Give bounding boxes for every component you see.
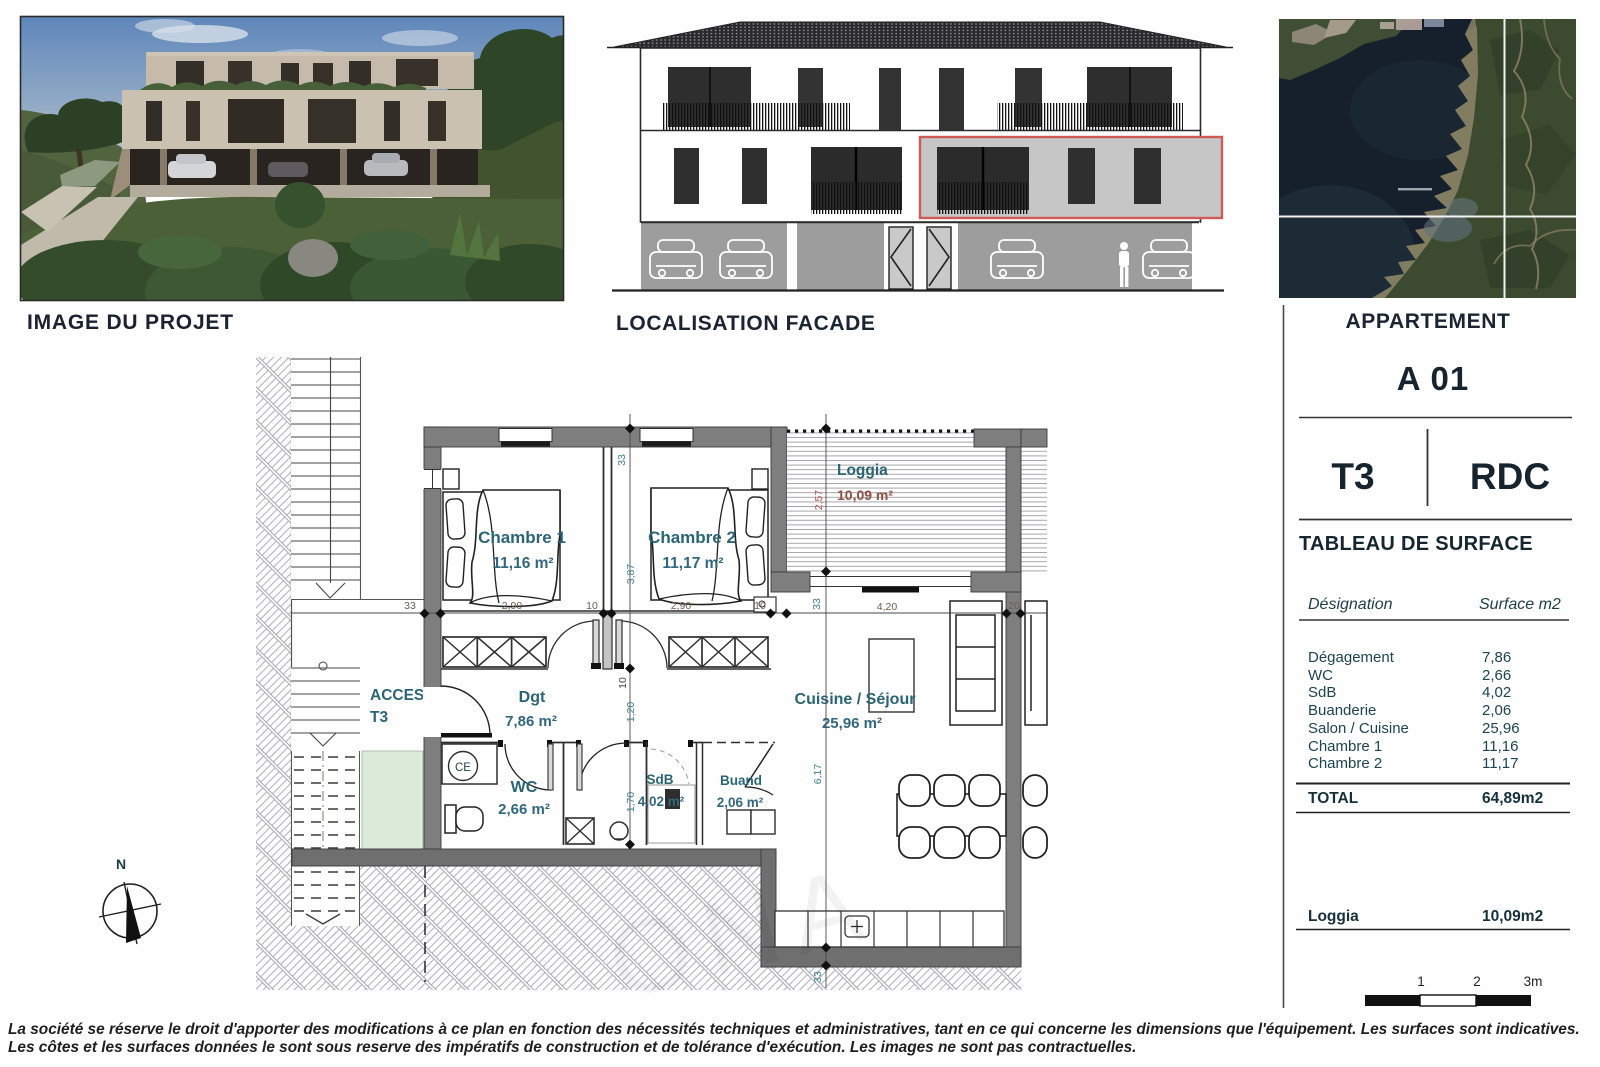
svg-text:CE: CE bbox=[455, 762, 471, 774]
svg-text:Cuisine / Séjour: Cuisine / Séjour bbox=[795, 691, 916, 708]
svg-text:7,86 m²: 7,86 m² bbox=[505, 713, 557, 730]
svg-text:11,17: 11,17 bbox=[1482, 755, 1518, 772]
svg-text:3m: 3m bbox=[1524, 974, 1543, 989]
svg-text:Dgt: Dgt bbox=[519, 689, 546, 706]
svg-text:Chambre 1: Chambre 1 bbox=[1308, 738, 1382, 755]
svg-text:TOTAL: TOTAL bbox=[1308, 790, 1358, 807]
svg-text:RDC: RDC bbox=[1470, 456, 1550, 497]
svg-text:WC: WC bbox=[511, 779, 538, 796]
svg-text:4,02: 4,02 bbox=[1482, 684, 1511, 701]
svg-text:1,20: 1,20 bbox=[625, 702, 637, 723]
svg-text:Désignation: Désignation bbox=[1308, 596, 1393, 613]
svg-text:33: 33 bbox=[404, 600, 416, 612]
svg-text:Loggia: Loggia bbox=[837, 462, 888, 479]
svg-text:IMAGE DU PROJET: IMAGE DU PROJET bbox=[27, 311, 234, 334]
svg-text:10,09m2: 10,09m2 bbox=[1482, 908, 1543, 925]
svg-text:4,20: 4,20 bbox=[877, 601, 898, 613]
svg-text:4,02 m²: 4,02 m² bbox=[638, 794, 685, 809]
svg-text:WC: WC bbox=[1308, 667, 1333, 684]
svg-text:2,66 m²: 2,66 m² bbox=[498, 801, 550, 818]
svg-text:6,17: 6,17 bbox=[812, 764, 824, 785]
svg-text:33: 33 bbox=[812, 971, 824, 983]
svg-text:25,96 m²: 25,96 m² bbox=[822, 715, 882, 732]
svg-text:Salon / Cuisine: Salon / Cuisine bbox=[1308, 720, 1409, 737]
svg-text:Buand: Buand bbox=[720, 773, 762, 788]
svg-text:2,06 m²: 2,06 m² bbox=[717, 795, 764, 810]
svg-text:10: 10 bbox=[754, 600, 766, 612]
svg-text:Dégagement: Dégagement bbox=[1308, 649, 1395, 666]
svg-text:7,86: 7,86 bbox=[1482, 649, 1511, 666]
svg-text:64,89m2: 64,89m2 bbox=[1482, 790, 1543, 807]
svg-text:A 01: A 01 bbox=[1397, 360, 1469, 397]
svg-text:33: 33 bbox=[811, 598, 823, 610]
svg-text:APPARTEMENT: APPARTEMENT bbox=[1346, 310, 1511, 333]
svg-text:La société se réserve le droit: La société se réserve le droit d'apporte… bbox=[8, 1021, 1580, 1038]
svg-text:2,66: 2,66 bbox=[1482, 667, 1511, 684]
svg-text:20: 20 bbox=[1008, 600, 1020, 612]
svg-text:3,87: 3,87 bbox=[625, 564, 637, 585]
svg-text:T3: T3 bbox=[1331, 456, 1374, 497]
svg-text:TABLEAU DE SURFACE: TABLEAU DE SURFACE bbox=[1299, 533, 1533, 555]
svg-text:2: 2 bbox=[1473, 974, 1481, 989]
svg-text:11,16: 11,16 bbox=[1482, 738, 1518, 755]
svg-text:Loggia: Loggia bbox=[1308, 908, 1359, 925]
svg-text:2,06: 2,06 bbox=[1482, 702, 1511, 719]
svg-text:33: 33 bbox=[616, 454, 628, 466]
svg-text:25,96: 25,96 bbox=[1482, 720, 1520, 737]
svg-text:SdB: SdB bbox=[647, 772, 674, 787]
svg-text:2,90: 2,90 bbox=[502, 600, 523, 612]
svg-text:10: 10 bbox=[617, 677, 629, 689]
svg-text:SdB: SdB bbox=[1308, 684, 1336, 701]
svg-text:Chambre 2: Chambre 2 bbox=[1308, 755, 1382, 772]
svg-text:Buanderie: Buanderie bbox=[1308, 702, 1376, 719]
svg-text:T3: T3 bbox=[370, 709, 388, 726]
svg-text:ACCES: ACCES bbox=[370, 687, 424, 704]
svg-text:10: 10 bbox=[586, 600, 598, 612]
svg-text:10,09 m²: 10,09 m² bbox=[837, 487, 893, 503]
svg-text:Chambre 1: Chambre 1 bbox=[478, 528, 566, 547]
svg-text:11,17 m²: 11,17 m² bbox=[662, 555, 723, 572]
svg-text:2,57: 2,57 bbox=[813, 490, 825, 511]
svg-text:N: N bbox=[116, 856, 126, 872]
svg-text:2,90: 2,90 bbox=[671, 600, 692, 612]
svg-text:11,16 m²: 11,16 m² bbox=[492, 555, 553, 572]
svg-text:Surface m2: Surface m2 bbox=[1479, 596, 1561, 613]
svg-text:LOCALISATION FACADE: LOCALISATION FACADE bbox=[616, 312, 876, 335]
svg-text:1,70: 1,70 bbox=[625, 792, 637, 813]
svg-text:Les côtes et les surfaces donn: Les côtes et les surfaces données le son… bbox=[8, 1039, 1136, 1056]
svg-text:1: 1 bbox=[1417, 974, 1425, 989]
svg-text:Chambre 2: Chambre 2 bbox=[648, 528, 736, 547]
